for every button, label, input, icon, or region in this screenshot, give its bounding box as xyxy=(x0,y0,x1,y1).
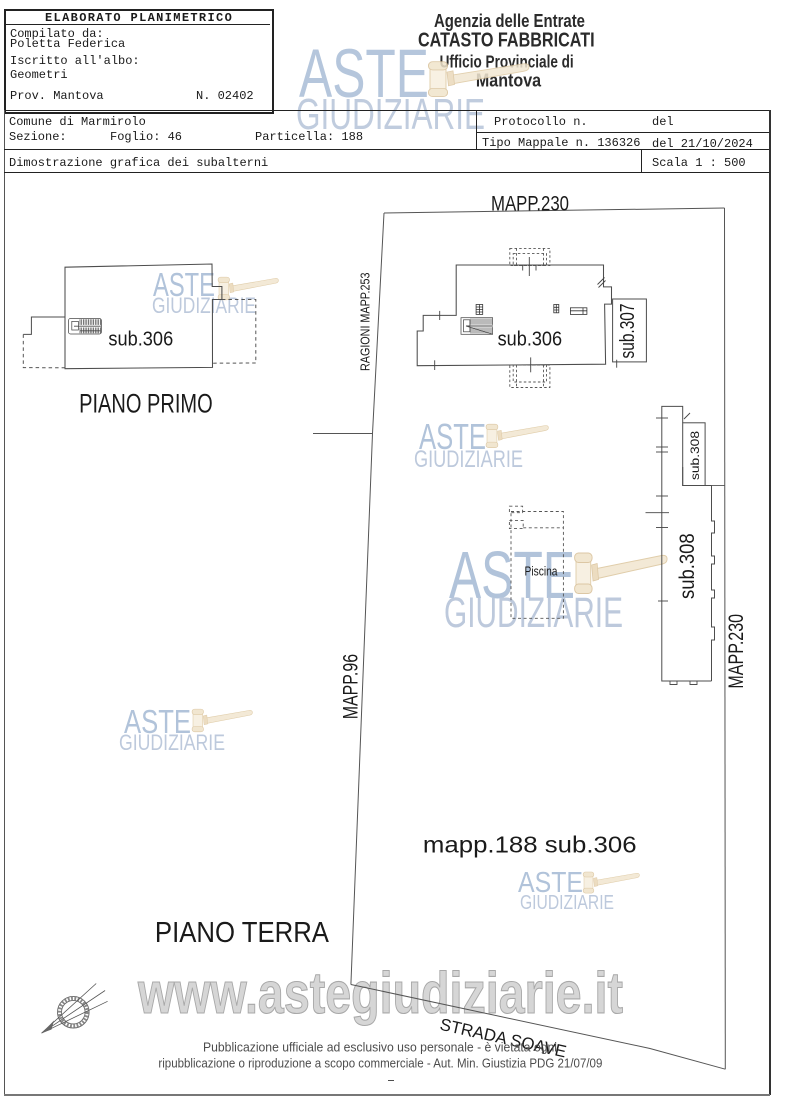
svg-text:sub.308: sub.308 xyxy=(688,431,702,480)
svg-text:GIUDIZIARIE: GIUDIZIARIE xyxy=(152,293,256,318)
svg-text:Pubblicazione ufficiale ad esc: Pubblicazione ufficiale ad esclusivo uso… xyxy=(203,1041,557,1055)
svg-text:GIUDIZIARIE: GIUDIZIARIE xyxy=(119,730,225,755)
svg-text:GIUDIZIARIE: GIUDIZIARIE xyxy=(520,892,614,914)
svg-text:sub.306: sub.306 xyxy=(108,328,173,351)
svg-text:www.astegiudiziarie.it: www.astegiudiziarie.it xyxy=(137,961,623,1026)
svg-text:sub.308: sub.308 xyxy=(675,533,699,599)
svg-text:PIANO TERRA: PIANO TERRA xyxy=(155,917,329,949)
svg-text:Piscina: Piscina xyxy=(525,565,558,579)
svg-text:MAPP.230: MAPP.230 xyxy=(491,192,569,216)
svg-text:RAGIONI MAPP.253: RAGIONI MAPP.253 xyxy=(359,272,373,371)
svg-text:ripubblicazione o riproduzione: ripubblicazione o riproduzione a scopo c… xyxy=(158,1057,602,1071)
svg-text:sub.307: sub.307 xyxy=(617,304,639,359)
svg-text:MAPP.96: MAPP.96 xyxy=(340,654,363,719)
svg-text:mapp.188 sub.306: mapp.188 sub.306 xyxy=(423,832,637,858)
svg-text:GIUDIZIARIE: GIUDIZIARIE xyxy=(414,446,523,473)
svg-text:sub.306: sub.306 xyxy=(498,327,562,350)
svg-text:PIANO PRIMO: PIANO PRIMO xyxy=(79,389,213,419)
svg-text:GIUDIZIARIE: GIUDIZIARIE xyxy=(444,589,623,637)
svg-text:MAPP.230: MAPP.230 xyxy=(725,614,748,689)
svg-text:CATASTO FABBRICATI: CATASTO FABBRICATI xyxy=(418,29,595,52)
